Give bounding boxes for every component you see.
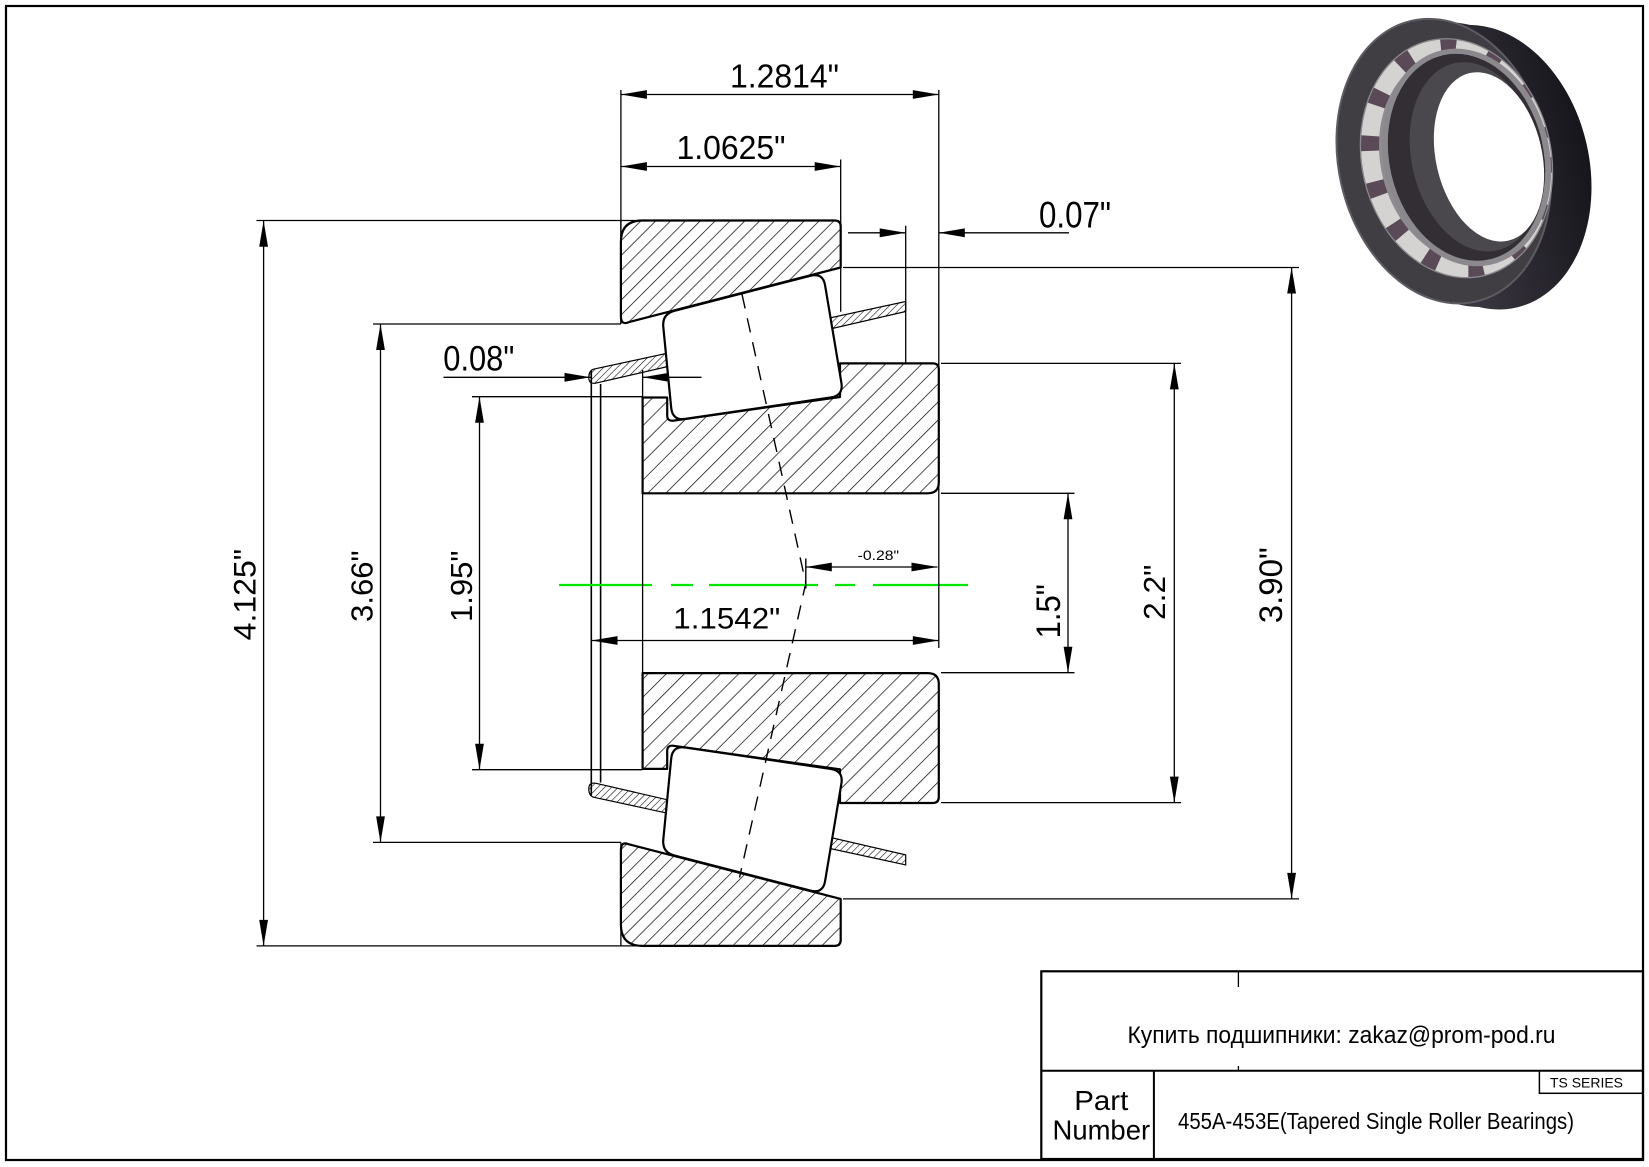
svg-text:4.125": 4.125" — [226, 549, 262, 641]
svg-text:Купить подшипники: zakaz@prom-: Купить подшипники: zakaz@prom-pod.ru — [1128, 1022, 1556, 1049]
svg-text:TS SERIES: TS SERIES — [1550, 1075, 1623, 1091]
svg-text:Part: Part — [1074, 1085, 1128, 1116]
svg-text:Number: Number — [1053, 1114, 1151, 1145]
svg-text:-0.28": -0.28" — [858, 547, 900, 563]
svg-text:2.2": 2.2" — [1137, 565, 1172, 620]
svg-text:3.66": 3.66" — [344, 550, 379, 622]
svg-text:1.0625": 1.0625" — [677, 129, 786, 166]
svg-text:1.95": 1.95" — [444, 551, 479, 623]
svg-text:1.2814": 1.2814" — [730, 58, 839, 95]
svg-text:0.08": 0.08" — [443, 340, 514, 379]
svg-text:455A-453E(Tapered Single Rolle: 455A-453E(Tapered Single Roller Bearings… — [1178, 1108, 1574, 1134]
svg-text:3.90": 3.90" — [1253, 547, 1289, 623]
svg-text:0.07": 0.07" — [1039, 195, 1111, 236]
svg-text:1.5": 1.5" — [1030, 584, 1068, 638]
svg-text:1.1542": 1.1542" — [673, 603, 780, 636]
